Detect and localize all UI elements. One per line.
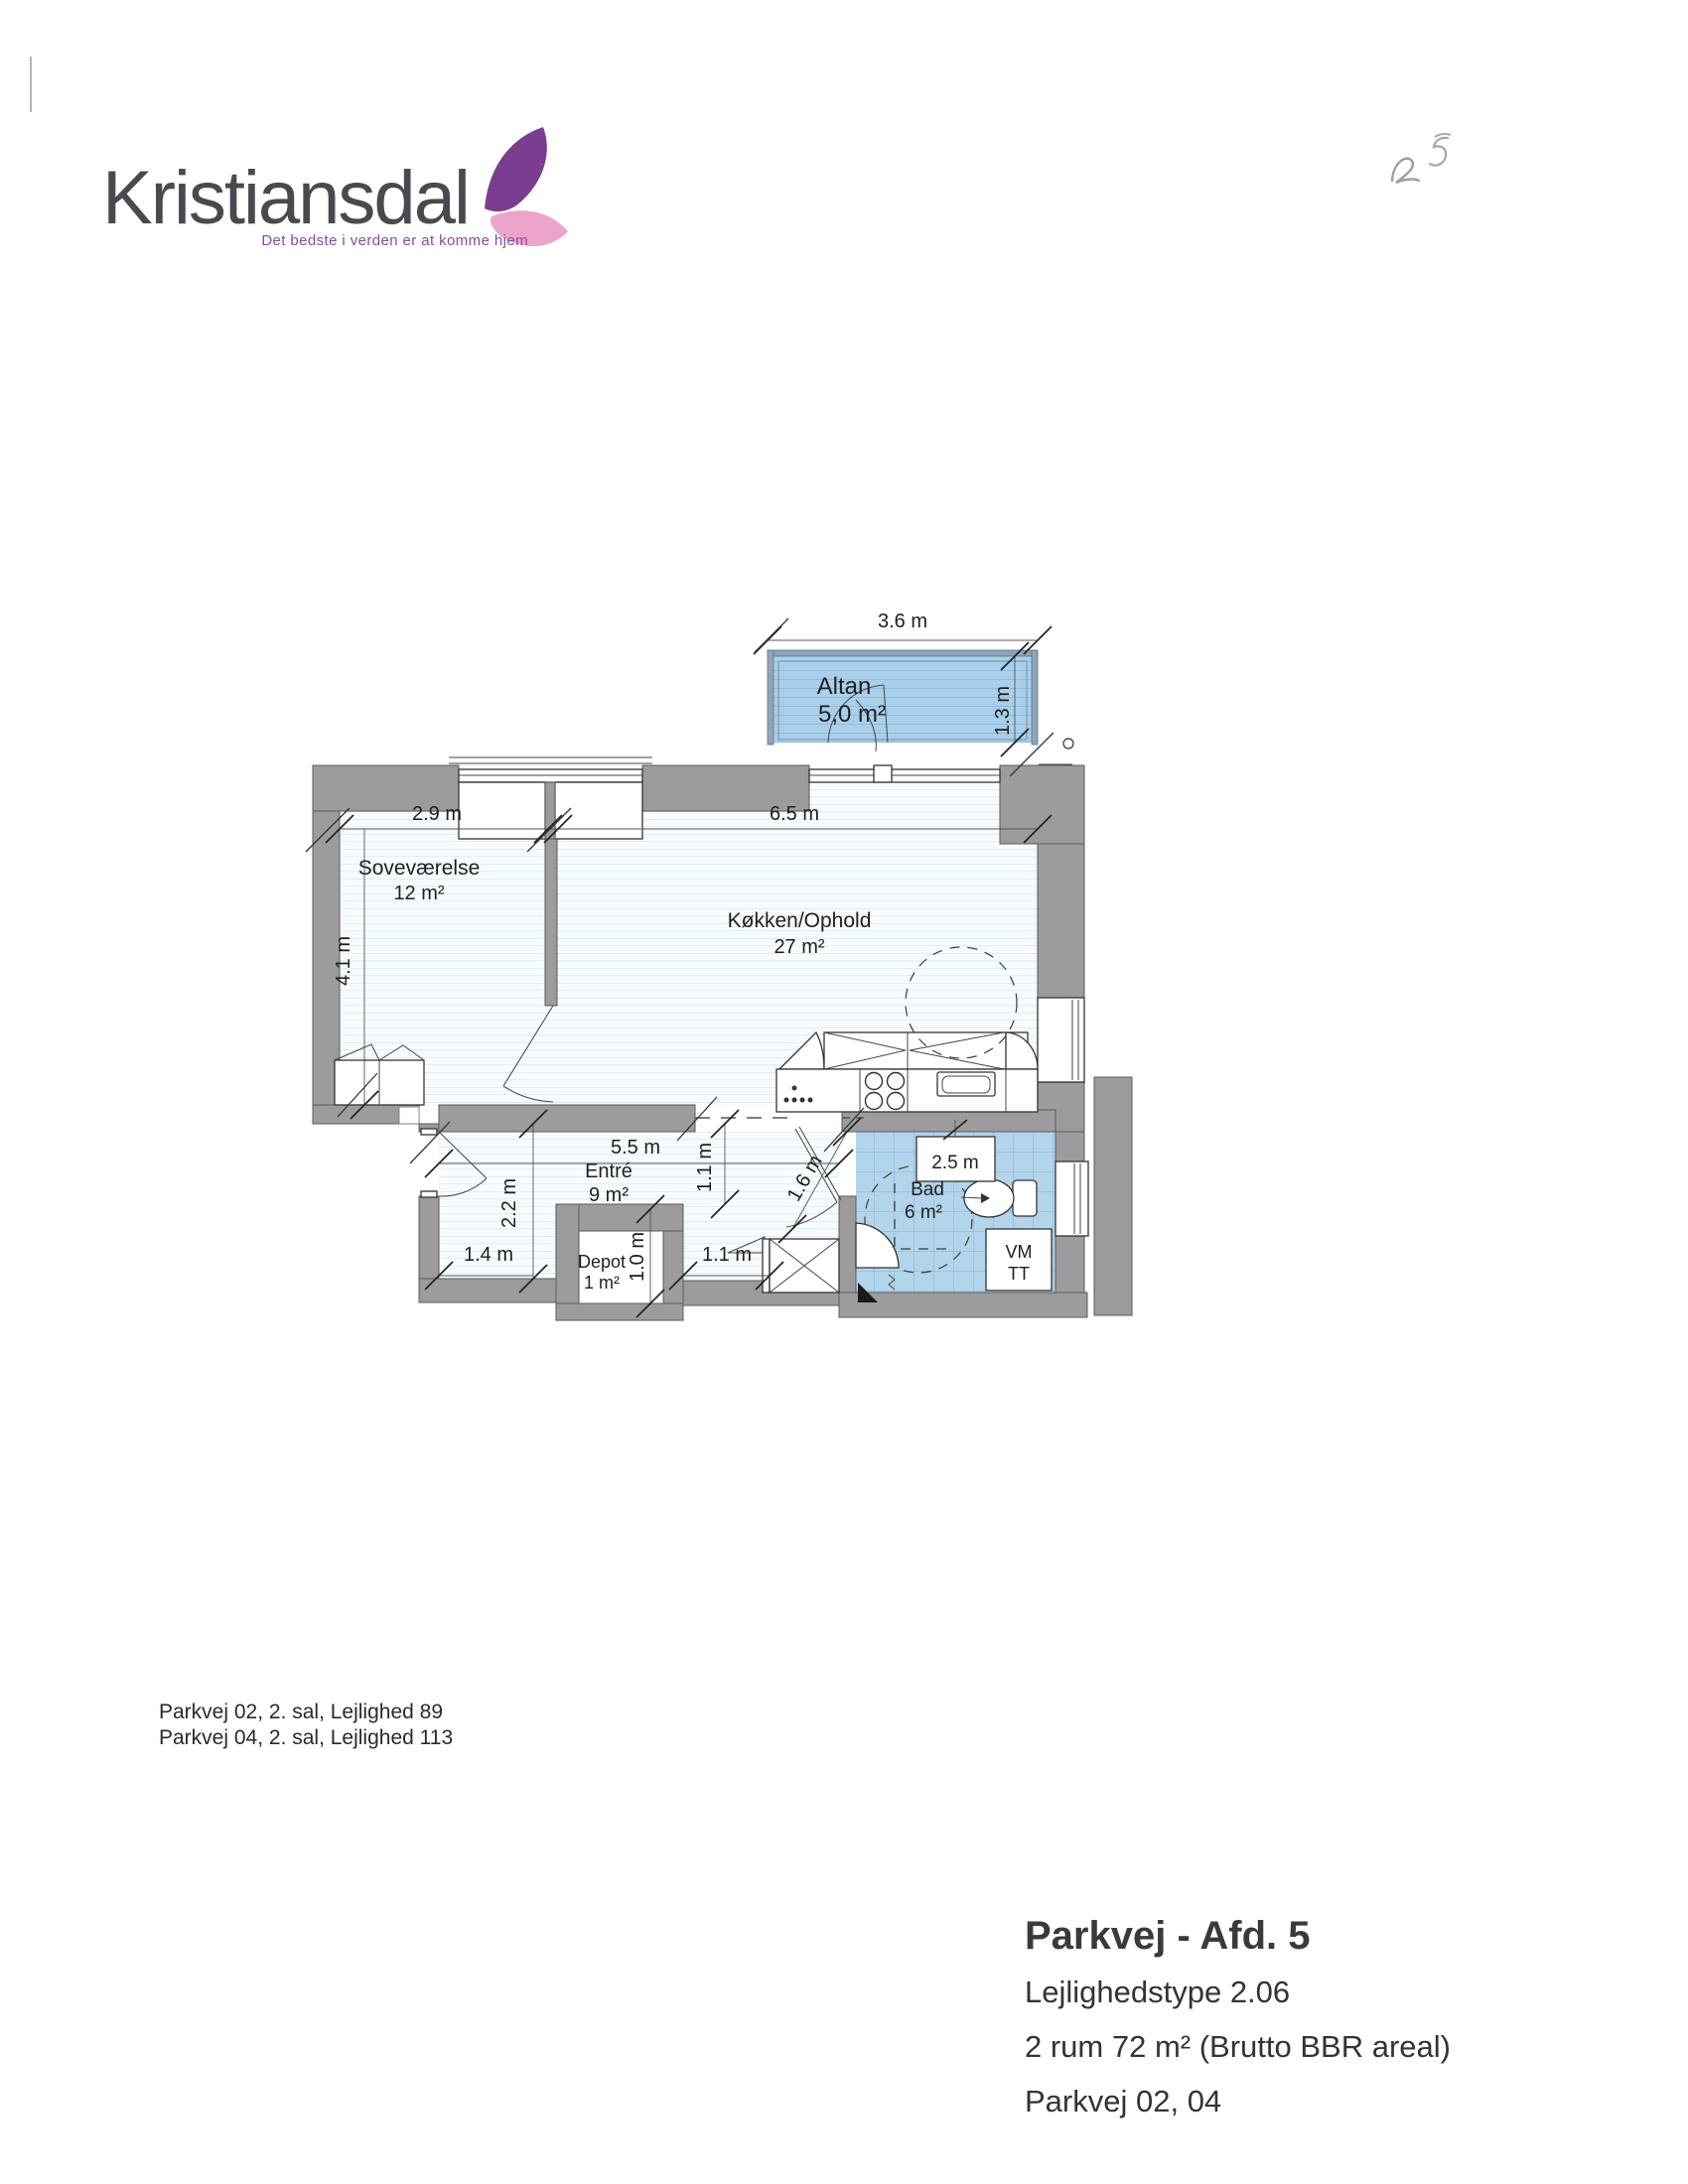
unit-address-line: Parkvej 04, 2. sal, Lejlighed 113 <box>159 1725 453 1751</box>
apartment-info-block: Parkvej - Afd. 5 Lejlighedstype 2.06 2 r… <box>1025 1914 1451 2138</box>
dim-entre-passage: 1.1 m <box>694 1143 716 1192</box>
dim-alcove-width: 1.4 m <box>464 1244 513 1266</box>
depot-area: 1 m² <box>584 1273 620 1293</box>
unit-address-line: Parkvej 02, 2. sal, Lejlighed 89 <box>159 1700 453 1725</box>
dim-balcony-depth: 1.3 m <box>992 686 1014 736</box>
dim-bath-width: 2.5 m <box>931 1153 979 1173</box>
floor-areas <box>340 656 1055 1303</box>
bathroom-window <box>1055 1161 1088 1236</box>
info-type: Lejlighedstype 2.06 <box>1025 1975 1451 2010</box>
entre-alcove-floor <box>439 1204 556 1279</box>
dim-corridor-width: 1.1 m <box>702 1244 752 1266</box>
toilet <box>961 1179 1037 1217</box>
entre-name: Entré <box>585 1160 633 1182</box>
dim-entre-depth: 2.2 m <box>498 1178 520 1228</box>
tt-label: TT <box>1008 1264 1030 1284</box>
scanned-floorplan-page: Kristiansdal Det bedste i verden er at k… <box>0 0 1688 2184</box>
dim-entre-width: 5.5 m <box>611 1137 660 1159</box>
info-title: Parkvej - Afd. 5 <box>1025 1914 1451 1959</box>
dim-depot-depth: 1.0 m <box>627 1232 648 1282</box>
logo-wordmark: Kristiansdal <box>102 161 469 236</box>
info-size: 2 rum 72 m² (Brutto BBR areal) <box>1025 2029 1451 2065</box>
living-window <box>1038 998 1084 1082</box>
entre-closet <box>763 1239 839 1293</box>
info-address: Parkvej 02, 04 <box>1025 2084 1451 2119</box>
bad-area: 6 m² <box>905 1202 942 1223</box>
koekken-name: Køkken/Ophold <box>728 909 872 932</box>
kitchen-counter <box>776 1032 1038 1112</box>
bad-name: Bad <box>911 1179 944 1200</box>
koekken-area: 27 m² <box>774 936 824 958</box>
logo-tagline: Det bedste i verden er at komme hjem <box>248 232 528 249</box>
dim-bedroom-depth: 4.1 m <box>333 936 354 986</box>
sovevaerelse-area: 12 m² <box>393 883 444 904</box>
wall-notch <box>399 1107 419 1124</box>
entre-area: 9 m² <box>589 1184 629 1206</box>
handwritten-digit-5 <box>1430 138 1448 166</box>
floor-plan: VM TT <box>268 586 1152 1340</box>
handwritten-digit-5-bar <box>1435 134 1451 137</box>
vm-tt-box: VM TT <box>986 1229 1052 1291</box>
sovevaerelse-name: Soveværelse <box>358 857 481 880</box>
dim-bedroom-width: 2.9 m <box>412 803 462 825</box>
dim-balcony-width: 3.6 m <box>878 611 927 632</box>
kitchen-sink <box>937 1072 995 1096</box>
vm-label: VM <box>1006 1242 1033 1262</box>
handwritten-digit-2 <box>1392 159 1419 183</box>
dim-living-width: 6.5 m <box>770 803 819 825</box>
handwritten-page-number: 25 <box>1378 121 1468 201</box>
depot-name: Depot <box>578 1252 626 1272</box>
scan-artifact <box>30 57 32 112</box>
unit-address-list: Parkvej 02, 2. sal, Lejlighed 89 Parkvej… <box>159 1700 453 1751</box>
balcony-door-threshold <box>809 765 1000 782</box>
altan-area: 5,0 m² <box>818 701 886 728</box>
logo-leaf-dark <box>485 127 547 211</box>
altan-name: Altan <box>817 673 872 700</box>
